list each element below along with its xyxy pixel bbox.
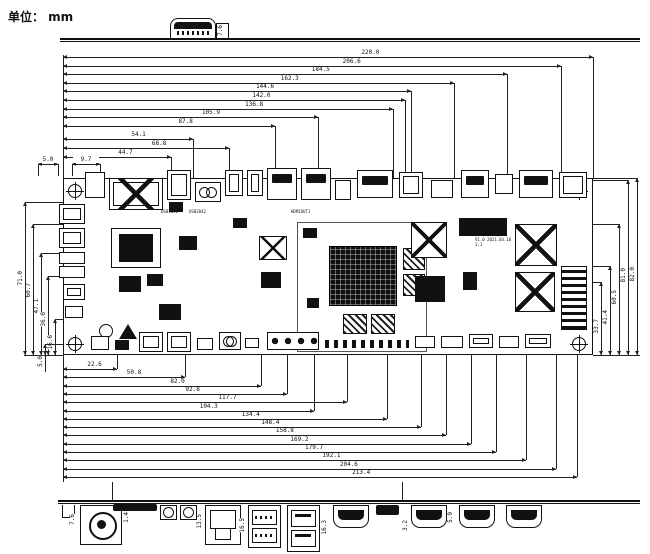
- dim-label: 206.6: [339, 59, 365, 65]
- component-hole: [68, 337, 82, 351]
- dim-extension: [347, 355, 348, 402]
- hdmi-port: [333, 505, 369, 528]
- top-usb-connector: [170, 18, 216, 39]
- component-chip: [179, 236, 197, 250]
- dim-extension: [405, 100, 406, 178]
- port-dim-label: 1.4: [124, 512, 130, 523]
- dim-label: 184.5: [308, 67, 334, 73]
- dim-label: 220.0: [357, 50, 383, 56]
- dim-extension: [55, 319, 63, 320]
- component-qfp: [411, 222, 447, 258]
- component-conn2: [63, 284, 85, 300]
- component-conn: [197, 338, 213, 350]
- dc-jack: [80, 505, 122, 545]
- dim-line-left: [45, 344, 46, 372]
- hdmi-port: [459, 505, 495, 528]
- component-soic: [111, 228, 161, 268]
- dim-extension: [314, 355, 315, 411]
- dim-extension: [561, 66, 562, 178]
- component-usb: [357, 170, 393, 198]
- component-conn: [441, 336, 463, 348]
- component-chip: [159, 304, 181, 320]
- dim-line-bottom: [63, 452, 496, 453]
- component-conn: [335, 180, 351, 200]
- dim-label: 204.6: [336, 462, 362, 468]
- dim-line-bottom: [63, 369, 117, 370]
- component-chip: [233, 218, 247, 228]
- dim-line-right: [637, 178, 638, 355]
- dim-label: 82.0: [165, 379, 191, 385]
- ethernet-port: [205, 505, 241, 545]
- dim-label: 104.3: [196, 404, 222, 410]
- component-pinhdr: [561, 266, 587, 330]
- component-conn2: [247, 170, 263, 196]
- audio-jack: [160, 505, 177, 520]
- pcb-mechanical-drawing: 单位： mm 220.0206.6184.5162.3144.6142.0136…: [0, 0, 650, 554]
- silkscreen-label: USB3041: [161, 209, 178, 214]
- dim-label: 87.8: [173, 119, 199, 125]
- dim-extension: [261, 355, 262, 386]
- dim-line-bottom: [63, 444, 471, 445]
- dim-label: 134.4: [238, 412, 264, 418]
- hdmi-port: [411, 505, 447, 528]
- dim-label: 71.0: [18, 271, 24, 285]
- small-connector: [376, 505, 399, 515]
- unit-label: 单位： mm: [8, 8, 73, 25]
- component-conn: [65, 306, 83, 318]
- dim-extension: [38, 164, 39, 176]
- dim-extension: [593, 282, 601, 283]
- component-chip: [307, 298, 319, 308]
- component-conn: [495, 174, 513, 194]
- dim-label: 148.4: [257, 420, 283, 426]
- dim-line-bottom: [63, 419, 387, 420]
- component-qfp: [259, 236, 287, 260]
- dim-arrow: [43, 351, 47, 355]
- component-hatch: [343, 314, 367, 334]
- component-conn2: [167, 332, 191, 352]
- dim-label: 192.1: [318, 453, 344, 459]
- dim-line-top: [63, 91, 411, 92]
- dim-extension: [526, 355, 527, 460]
- component-hatch: [371, 314, 395, 334]
- dim-extension: [577, 355, 578, 477]
- dim-label: 92.8: [180, 387, 206, 393]
- dim-extension: [185, 355, 186, 377]
- usb3-stack: [287, 505, 320, 552]
- port-dim-label: 7.6: [70, 514, 76, 525]
- component-hole: [572, 337, 586, 351]
- component-usb: [267, 168, 297, 200]
- component-chip: [261, 272, 281, 288]
- dim-label: 162.3: [277, 76, 303, 82]
- component-conn: [59, 252, 85, 264]
- dim-extension: [593, 180, 628, 181]
- dim-label: 16.6: [48, 335, 54, 349]
- dim-extension: [393, 109, 394, 178]
- dim-label: 5.0: [35, 157, 61, 163]
- silkscreen-label: HDMIOUT1: [291, 209, 310, 214]
- dim-label: 50.8: [121, 370, 147, 376]
- component-bga: [329, 246, 397, 306]
- dim-label: 36.6: [41, 312, 47, 326]
- dim-line-top: [63, 57, 593, 58]
- dim-line-left: [55, 319, 56, 355]
- edge-connector-strip: [113, 504, 157, 511]
- dim-label: 9.7: [73, 157, 99, 163]
- dim-line-bottom: [63, 435, 446, 436]
- dim-label: 105.9: [198, 110, 224, 116]
- dim-extension: [556, 355, 557, 469]
- dim-extension: [45, 344, 63, 345]
- dim-extension: [58, 164, 59, 176]
- dim-extension: [593, 178, 637, 179]
- dim-label: 136.8: [241, 102, 267, 108]
- component-chip: [415, 276, 445, 302]
- dim-extension: [593, 57, 594, 178]
- dim-extension: [63, 355, 64, 482]
- component-dip: [219, 332, 241, 350]
- dim-line-top: [63, 109, 393, 110]
- port-dim-label: 13.5: [197, 514, 203, 528]
- dim-line-bottom: [63, 411, 314, 412]
- component-conn: [59, 266, 85, 278]
- component-conn: [85, 172, 105, 198]
- component-usb: [519, 170, 553, 198]
- dim-label: 158.8: [272, 428, 298, 434]
- dim-extension: [387, 355, 388, 419]
- dim-extension: [63, 55, 64, 178]
- dim-extension: [507, 74, 508, 178]
- dim-extension: [112, 482, 113, 500]
- dim-label: 54.1: [126, 132, 152, 138]
- dim-label: 22.6: [82, 362, 108, 368]
- dim-line-bottom: [63, 427, 421, 428]
- component-usb: [461, 170, 489, 198]
- component-conn: [245, 338, 259, 348]
- dim-extension: [471, 355, 472, 444]
- audio-jack: [180, 505, 197, 520]
- dim-extension: [193, 139, 194, 178]
- top-side-view-bar: [60, 38, 640, 42]
- component-qfp: [515, 272, 555, 312]
- dim-line-bottom: [63, 469, 556, 470]
- dim-line-right: [619, 224, 620, 355]
- component-conn2: [139, 332, 163, 352]
- dim-extension: [287, 355, 288, 394]
- hdmi-port: [506, 505, 542, 528]
- component-conn2: [525, 334, 551, 348]
- dim-extension: [25, 202, 63, 203]
- dim-extension: [421, 355, 422, 427]
- component-chip: [303, 228, 317, 238]
- dim-line-bottom: [63, 386, 261, 387]
- usb2-stack: [248, 505, 281, 548]
- dim-label: 169.2: [286, 437, 312, 443]
- dim-label: 142.0: [248, 93, 274, 99]
- dim-extension: [411, 91, 412, 178]
- dim-label: 5.0: [38, 356, 44, 367]
- component-conn2: [167, 170, 191, 200]
- component-conn: [91, 336, 109, 350]
- component-conn2: [469, 334, 493, 348]
- component-chip: [115, 340, 129, 350]
- dim-extension: [117, 355, 118, 369]
- dim-label: 117.7: [214, 395, 240, 401]
- title-block-line: 1:1: [475, 242, 482, 247]
- dim-line-top: [63, 148, 229, 149]
- component-conn2: [399, 172, 423, 198]
- dim-line-left: [41, 253, 42, 355]
- component-conn: [431, 180, 453, 198]
- silkscreen-label: USB2042: [189, 209, 206, 214]
- component-xconn: [109, 178, 163, 210]
- dim-extension: [454, 83, 455, 178]
- dim-label: 47.1: [34, 299, 40, 313]
- component-conn2: [559, 172, 587, 198]
- dim-label: 60.5: [612, 290, 618, 304]
- dim-line-left: [33, 224, 34, 355]
- component-chip: [147, 274, 163, 286]
- dim-extension: [72, 164, 73, 176]
- dim-label: 60.7: [26, 283, 32, 297]
- component-usb: [301, 168, 331, 200]
- dim-line-bottom: [63, 477, 577, 478]
- dim-line-left: [25, 202, 26, 355]
- top-view-dim: 7.6: [218, 25, 224, 36]
- component-conn: [499, 336, 519, 348]
- port-dim-label: 16.5: [240, 518, 246, 532]
- dim-extension: [446, 355, 447, 435]
- component-conn: [415, 336, 435, 348]
- port-dim-label: 3.2: [403, 520, 409, 531]
- dim-extension: [593, 355, 640, 356]
- dim-line-bottom: [63, 460, 526, 461]
- component-hole: [68, 184, 82, 198]
- port-dim-label: 16.3: [322, 520, 328, 534]
- dim-line-top: [63, 126, 275, 127]
- component-tri: [119, 324, 137, 339]
- dim-line-bottom: [63, 394, 287, 395]
- component-jack4: [267, 332, 319, 350]
- dim-label: 82.0: [630, 267, 636, 281]
- dim-line-top: [63, 139, 193, 140]
- component-pinrow: [325, 340, 409, 348]
- component-qfp: [515, 224, 557, 266]
- dim-extension: [593, 266, 610, 267]
- component-conn2: [59, 204, 85, 224]
- dim-label: 41.4: [603, 310, 609, 324]
- component-chip: [463, 272, 477, 290]
- dim-extension: [593, 224, 619, 225]
- dim-label: 179.7: [301, 445, 327, 451]
- component-conn2: [59, 228, 85, 248]
- component-conn2: [225, 170, 243, 196]
- dim-extension: [33, 224, 63, 225]
- dim-line-top: [63, 100, 405, 101]
- component-chip: [119, 276, 141, 292]
- port-dim-label: 5.9: [448, 512, 454, 523]
- dim-label: 33.7: [594, 319, 600, 333]
- dim-label: 81.0: [621, 268, 627, 282]
- dim-label: 144.6: [252, 84, 278, 90]
- dim-label: 68.8: [146, 141, 172, 147]
- dim-extension: [496, 355, 497, 452]
- dim-label: 213.4: [348, 470, 374, 476]
- component-dip: [195, 182, 221, 202]
- dim-label: 44.7: [112, 150, 138, 156]
- dim-extension: [402, 482, 403, 500]
- dim-line-right: [610, 266, 611, 355]
